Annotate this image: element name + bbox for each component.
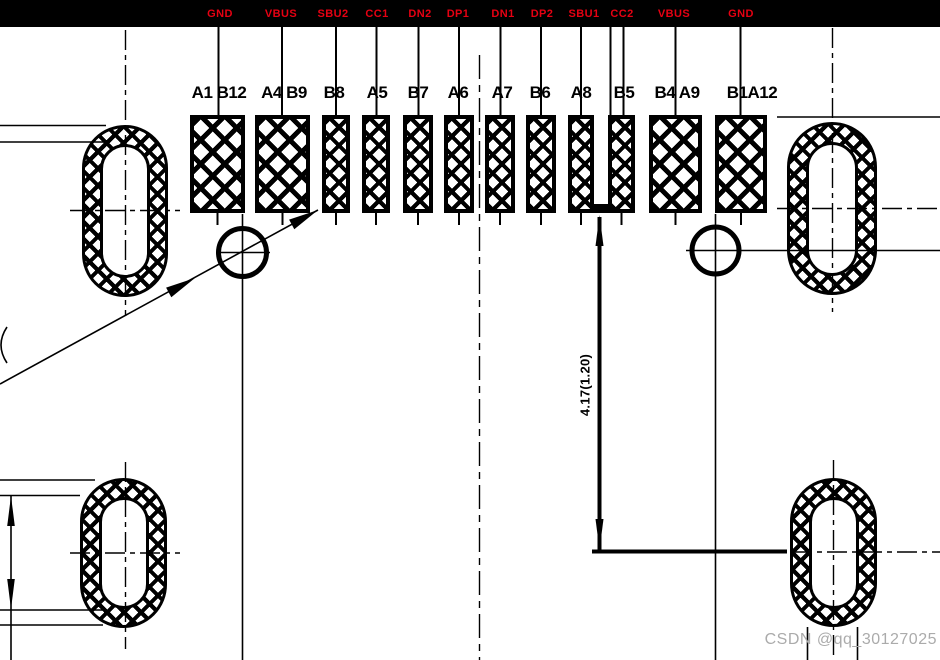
- pcb-edge-band: [0, 0, 940, 27]
- pad-a4-b9: [255, 115, 310, 213]
- pad-a6: [444, 115, 474, 213]
- pin-label-a8: A8: [571, 83, 592, 103]
- pin-label-b8: B8: [324, 83, 345, 103]
- left-dim-arrow-up-icon: [7, 496, 15, 526]
- fiducial-circle-right: [692, 227, 739, 274]
- signal-label-dp1: DP1: [447, 8, 470, 20]
- signal-label-cc2: CC2: [610, 8, 633, 20]
- pad-bottom-stubs: [218, 213, 742, 225]
- dimension-value: 4.17(1.20): [578, 354, 593, 416]
- watermark-text: CSDN @qq_30127025: [765, 631, 937, 649]
- pin-label-b5: B5: [614, 83, 635, 103]
- pin-label-a1-b12: A1 B12: [192, 83, 247, 103]
- pad-b6: [526, 115, 556, 213]
- dim-arrow-up-icon: [596, 215, 604, 246]
- dimension-lines: [592, 217, 787, 552]
- pad-b8: [322, 115, 350, 213]
- signal-label-sbu2: SBU2: [318, 8, 349, 20]
- dim-arrow-down-icon: [596, 519, 604, 550]
- pin-label-a6: A6: [448, 83, 469, 103]
- pin-label-b7: B7: [408, 83, 429, 103]
- signal-label-sbu1: SBU1: [569, 8, 600, 20]
- mounting-slot-bottom-left: [80, 478, 167, 628]
- signal-label-dp2: DP2: [531, 8, 554, 20]
- mounting-slot-top-left: [82, 125, 168, 297]
- signal-label-vbus-left: VBUS: [265, 8, 297, 20]
- signal-label-cc1: CC1: [365, 8, 388, 20]
- slot-hole: [806, 142, 858, 276]
- pad-b5: [608, 115, 635, 213]
- pin-label-b4-a9: B4 A9: [654, 83, 699, 103]
- signal-label-vbus-right: VBUS: [658, 8, 690, 20]
- mounting-slot-bottom-right: [790, 478, 877, 627]
- pin-label-a4-b9: A4 B9: [261, 83, 307, 103]
- pad-b7: [403, 115, 433, 213]
- usbc-footprint-drawing: GND VBUS SBU2 CC1 DN2 DP1 DN1 DP2 SBU1 C…: [0, 0, 940, 660]
- signal-label-dn2: DN2: [408, 8, 431, 20]
- partial-circle-arc: [1, 327, 7, 363]
- pin-label-a5: A5: [367, 83, 388, 103]
- left-dim-arrow-down-icon: [7, 579, 15, 609]
- fiducial-circle-left: [219, 229, 267, 277]
- pad-b1-a12: [715, 115, 767, 213]
- signal-label-dn1: DN1: [491, 8, 514, 20]
- slot-hole: [99, 497, 149, 609]
- pad-a7: [485, 115, 515, 213]
- signal-label-gnd-right: GND: [728, 8, 754, 20]
- pad-a1-b12: [190, 115, 245, 213]
- pad-a5: [362, 115, 390, 213]
- pin-label-b1-a12: B1A12: [727, 83, 777, 103]
- slot-hole: [809, 497, 859, 609]
- pin-label-a7: A7: [492, 83, 513, 103]
- pad-datum-bar: [594, 204, 609, 213]
- slot-hole: [100, 144, 150, 278]
- leader-arrow-mid-icon: [166, 278, 195, 297]
- pad-a8: [568, 115, 594, 213]
- mounting-slot-top-right: [787, 122, 877, 295]
- signal-label-gnd-left: GND: [207, 8, 233, 20]
- pin-label-b6: B6: [530, 83, 551, 103]
- pad-b4-a9: [649, 115, 702, 213]
